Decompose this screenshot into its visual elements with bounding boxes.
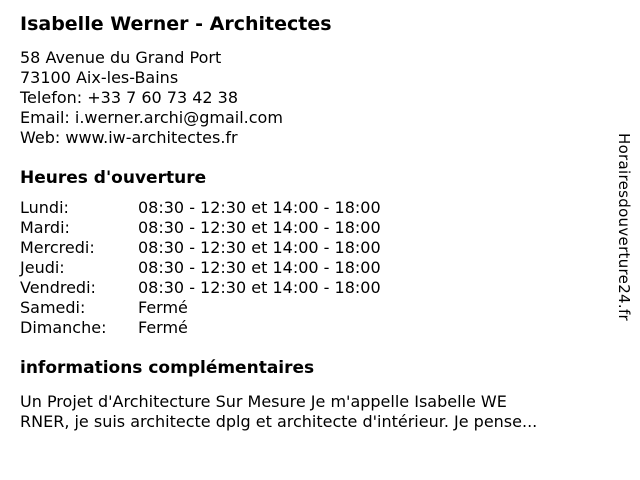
opening-hours-heading: Heures d'ouverture [20, 168, 600, 188]
day-label: Mercredi: [20, 238, 138, 258]
page-title: Isabelle Werner - Architectes [20, 13, 600, 36]
day-hours: Fermé [138, 318, 188, 338]
day-hours: 08:30 - 12:30 et 14:00 - 18:00 [138, 278, 381, 298]
site-watermark: Horairesdouverture24.fr [616, 133, 631, 321]
day-hours: 08:30 - 12:30 et 14:00 - 18:00 [138, 258, 381, 278]
address-line-1: 58 Avenue du Grand Port [20, 48, 600, 68]
email-line: Email: i.werner.archi@gmail.com [20, 108, 600, 128]
day-label: Lundi: [20, 198, 138, 218]
hours-row-friday: Vendredi: 08:30 - 12:30 et 14:00 - 18:00 [20, 278, 600, 298]
day-hours: 08:30 - 12:30 et 14:00 - 18:00 [138, 238, 381, 258]
website-line: Web: www.iw-architectes.fr [20, 128, 600, 148]
business-listing-page: Isabelle Werner - Architectes 58 Avenue … [0, 0, 640, 480]
hours-row-sunday: Dimanche: Fermé [20, 318, 600, 338]
hours-row-thursday: Jeudi: 08:30 - 12:30 et 14:00 - 18:00 [20, 258, 600, 278]
day-label: Dimanche: [20, 318, 138, 338]
day-hours: 08:30 - 12:30 et 14:00 - 18:00 [138, 218, 381, 238]
hours-row-monday: Lundi: 08:30 - 12:30 et 14:00 - 18:00 [20, 198, 600, 218]
day-label: Mardi: [20, 218, 138, 238]
address-line-2: 73100 Aix-les-Bains [20, 68, 600, 88]
hours-row-tuesday: Mardi: 08:30 - 12:30 et 14:00 - 18:00 [20, 218, 600, 238]
contact-block: 58 Avenue du Grand Port 73100 Aix-les-Ba… [20, 48, 600, 148]
main-content: Isabelle Werner - Architectes 58 Avenue … [0, 0, 640, 432]
opening-hours-table: Lundi: 08:30 - 12:30 et 14:00 - 18:00 Ma… [20, 198, 600, 338]
additional-info-text: Un Projet d'Architecture Sur Mesure Je m… [20, 392, 600, 432]
day-label: Vendredi: [20, 278, 138, 298]
info-line-1: Un Projet d'Architecture Sur Mesure Je m… [20, 392, 600, 412]
hours-row-saturday: Samedi: Fermé [20, 298, 600, 318]
day-hours: 08:30 - 12:30 et 14:00 - 18:00 [138, 198, 381, 218]
additional-info-heading: informations complémentaires [20, 358, 600, 378]
day-label: Jeudi: [20, 258, 138, 278]
info-line-2: RNER, je suis architecte dplg et archite… [20, 412, 600, 432]
hours-row-wednesday: Mercredi: 08:30 - 12:30 et 14:00 - 18:00 [20, 238, 600, 258]
day-hours: Fermé [138, 298, 188, 318]
day-label: Samedi: [20, 298, 138, 318]
phone-line: Telefon: +33 7 60 73 42 38 [20, 88, 600, 108]
